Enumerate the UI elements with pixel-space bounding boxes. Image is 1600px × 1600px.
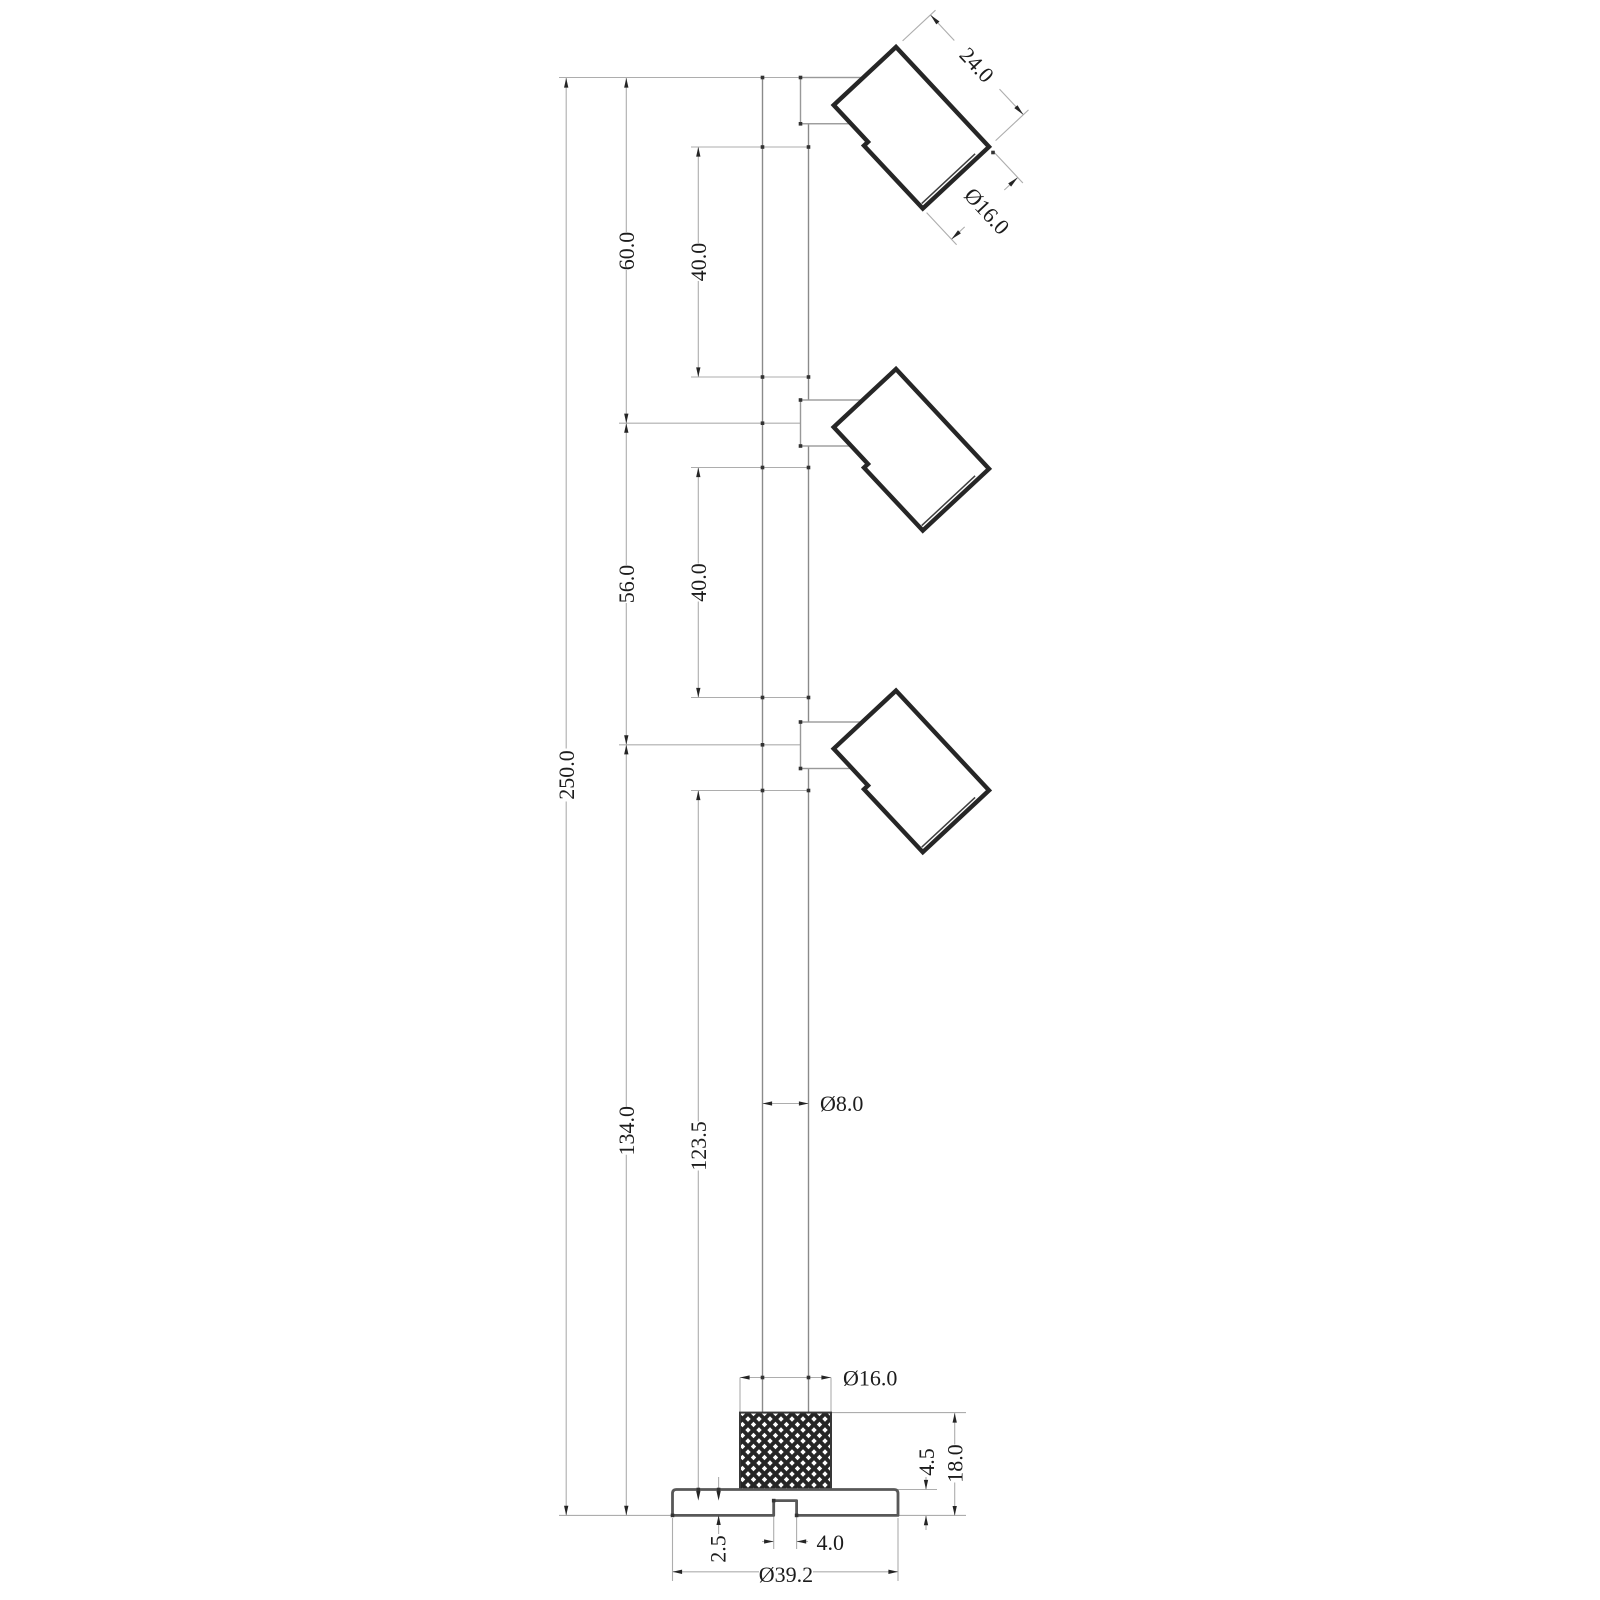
svg-text:2.5: 2.5 xyxy=(705,1535,730,1563)
svg-text:4.5: 4.5 xyxy=(914,1448,939,1476)
svg-text:60.0: 60.0 xyxy=(614,232,639,271)
svg-text:250.0: 250.0 xyxy=(554,750,579,800)
svg-text:134.0: 134.0 xyxy=(614,1106,639,1156)
svg-text:Ø8.0: Ø8.0 xyxy=(820,1091,863,1116)
svg-text:4.0: 4.0 xyxy=(817,1530,845,1555)
svg-text:40.0: 40.0 xyxy=(686,243,711,282)
svg-text:18.0: 18.0 xyxy=(943,1444,968,1483)
svg-text:123.5: 123.5 xyxy=(686,1121,711,1171)
svg-text:56.0: 56.0 xyxy=(614,565,639,604)
svg-text:Ø16.0: Ø16.0 xyxy=(843,1365,897,1390)
svg-text:40.0: 40.0 xyxy=(686,563,711,602)
svg-text:Ø39.2: Ø39.2 xyxy=(759,1562,813,1587)
